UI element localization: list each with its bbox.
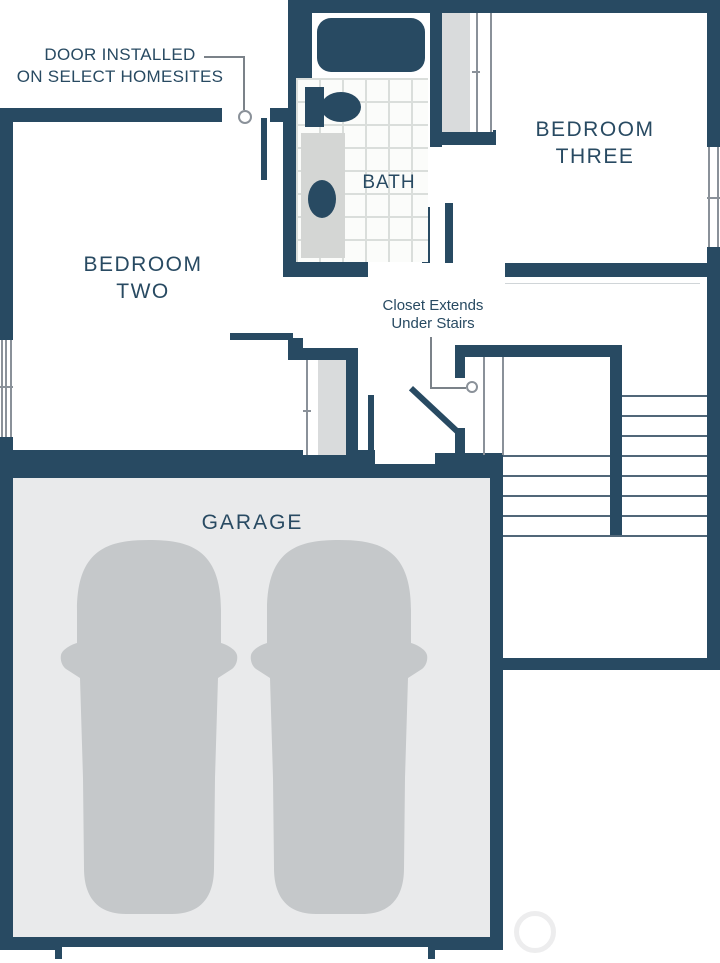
bedroom3-closet-fill: [442, 13, 470, 132]
bedroom2-closet-fill: [318, 360, 346, 455]
garage-door-jamb-right: [428, 939, 435, 959]
wall-bedroom3-bottom: [505, 263, 720, 277]
wall-garage-right: [490, 453, 503, 950]
door-hinge-marker: [238, 110, 252, 124]
slider-panel-jog: [472, 71, 480, 73]
stair-tread: [503, 495, 610, 497]
stair-tread: [622, 435, 707, 437]
stair-stringer-line: [502, 357, 504, 455]
bath-label: BATH: [339, 169, 439, 196]
closet-note: Closet Extends Under Stairs: [358, 297, 508, 333]
stair-tread: [503, 455, 610, 457]
car-silhouette-right: [250, 538, 428, 916]
wall-bedroom2-top-left: [0, 108, 222, 122]
wall-bedroom2-top-right: [270, 108, 296, 122]
wall-bedroom2-closet-right: [346, 348, 358, 455]
closet-note-leader-v: [430, 337, 432, 389]
window-divider-line: [0, 386, 13, 388]
wall-bedroom2-closet-thin-top: [230, 333, 293, 340]
slider-panel-jog: [303, 410, 311, 412]
bedroom2-closet-slider: [303, 360, 318, 455]
bedroom2-door-leaf: [261, 118, 267, 180]
stair-landing-edge: [503, 535, 707, 537]
wall-top: [288, 0, 720, 13]
window-frame-line: [1, 340, 3, 437]
wall-garage-left: [0, 464, 13, 950]
garage-label: GARAGE: [170, 509, 335, 536]
hall-door-jamb: [368, 395, 374, 455]
wall-right-mid: [707, 247, 720, 670]
closet-note-leader-h: [430, 387, 466, 389]
wall-stair-closet-top: [455, 345, 622, 357]
stair-tread: [503, 515, 610, 517]
stairs-opening-line: [505, 283, 700, 284]
window-frame-line: [5, 340, 7, 437]
stair-tread: [622, 455, 707, 457]
slider-track-line: [490, 13, 492, 132]
wall-bath-left: [283, 122, 296, 277]
stair-tread: [622, 515, 707, 517]
wall-bedroom3-closet-bottom: [430, 130, 496, 145]
wall-garage-top: [0, 464, 503, 478]
stair-tread: [622, 415, 707, 417]
floor-plan: GARAGE BATH: [0, 0, 720, 963]
wall-stair-closet-left-upper: [455, 345, 465, 378]
bedroom2-window: [0, 340, 13, 437]
closet-note-line2: Under Stairs: [358, 315, 508, 333]
stair-tread: [503, 475, 610, 477]
wall-stairwell-bottom: [503, 658, 720, 670]
door-note-leader-h: [204, 56, 245, 58]
garage-door-jamb-left: [55, 939, 62, 959]
door-note-leader-v: [243, 56, 245, 110]
window-frame-line: [10, 340, 12, 437]
stair-divider-wall: [610, 345, 622, 535]
wall-tub-right: [430, 13, 442, 147]
stair-tread: [622, 495, 707, 497]
bedroom2-label: BEDROOM TWO: [43, 251, 243, 305]
closet-note-line1: Closet Extends: [358, 297, 508, 315]
watermark-circle: [514, 911, 556, 953]
toilet-bowl: [321, 92, 361, 122]
bathtub: [317, 18, 425, 72]
garage-door-panel: [57, 939, 433, 947]
bedroom3-label-line2: THREE: [495, 143, 695, 170]
stair-closet-edge-line: [483, 357, 485, 455]
bedroom3-closet-slider: [470, 13, 493, 132]
car-silhouette-left: [60, 538, 238, 916]
wall-left-upper: [0, 108, 13, 340]
stair-tread: [622, 475, 707, 477]
bedroom3-door-jamb: [445, 203, 453, 263]
wall-right-top: [707, 0, 720, 147]
door-note: DOOR INSTALLED ON SELECT HOMESITES: [8, 44, 232, 88]
garage-door-recess: [62, 947, 428, 963]
bedroom2-label-line1: BEDROOM: [43, 251, 243, 278]
bedroom3-label: BEDROOM THREE: [495, 116, 695, 170]
wall-bath-bottom: [283, 262, 368, 277]
bath-sink: [308, 180, 336, 218]
window-divider-line: [707, 197, 720, 199]
closet-door-marker: [466, 381, 478, 393]
slider-track-line: [306, 360, 308, 455]
bedroom3-label-line1: BEDROOM: [495, 116, 695, 143]
door-note-line2: ON SELECT HOMESITES: [8, 66, 232, 88]
door-note-line1: DOOR INSTALLED: [8, 44, 232, 66]
stair-tread: [622, 395, 707, 397]
stair-closet-door-leaf: [409, 386, 461, 435]
bedroom3-window: [707, 147, 720, 247]
bedroom2-label-line2: TWO: [43, 278, 243, 305]
